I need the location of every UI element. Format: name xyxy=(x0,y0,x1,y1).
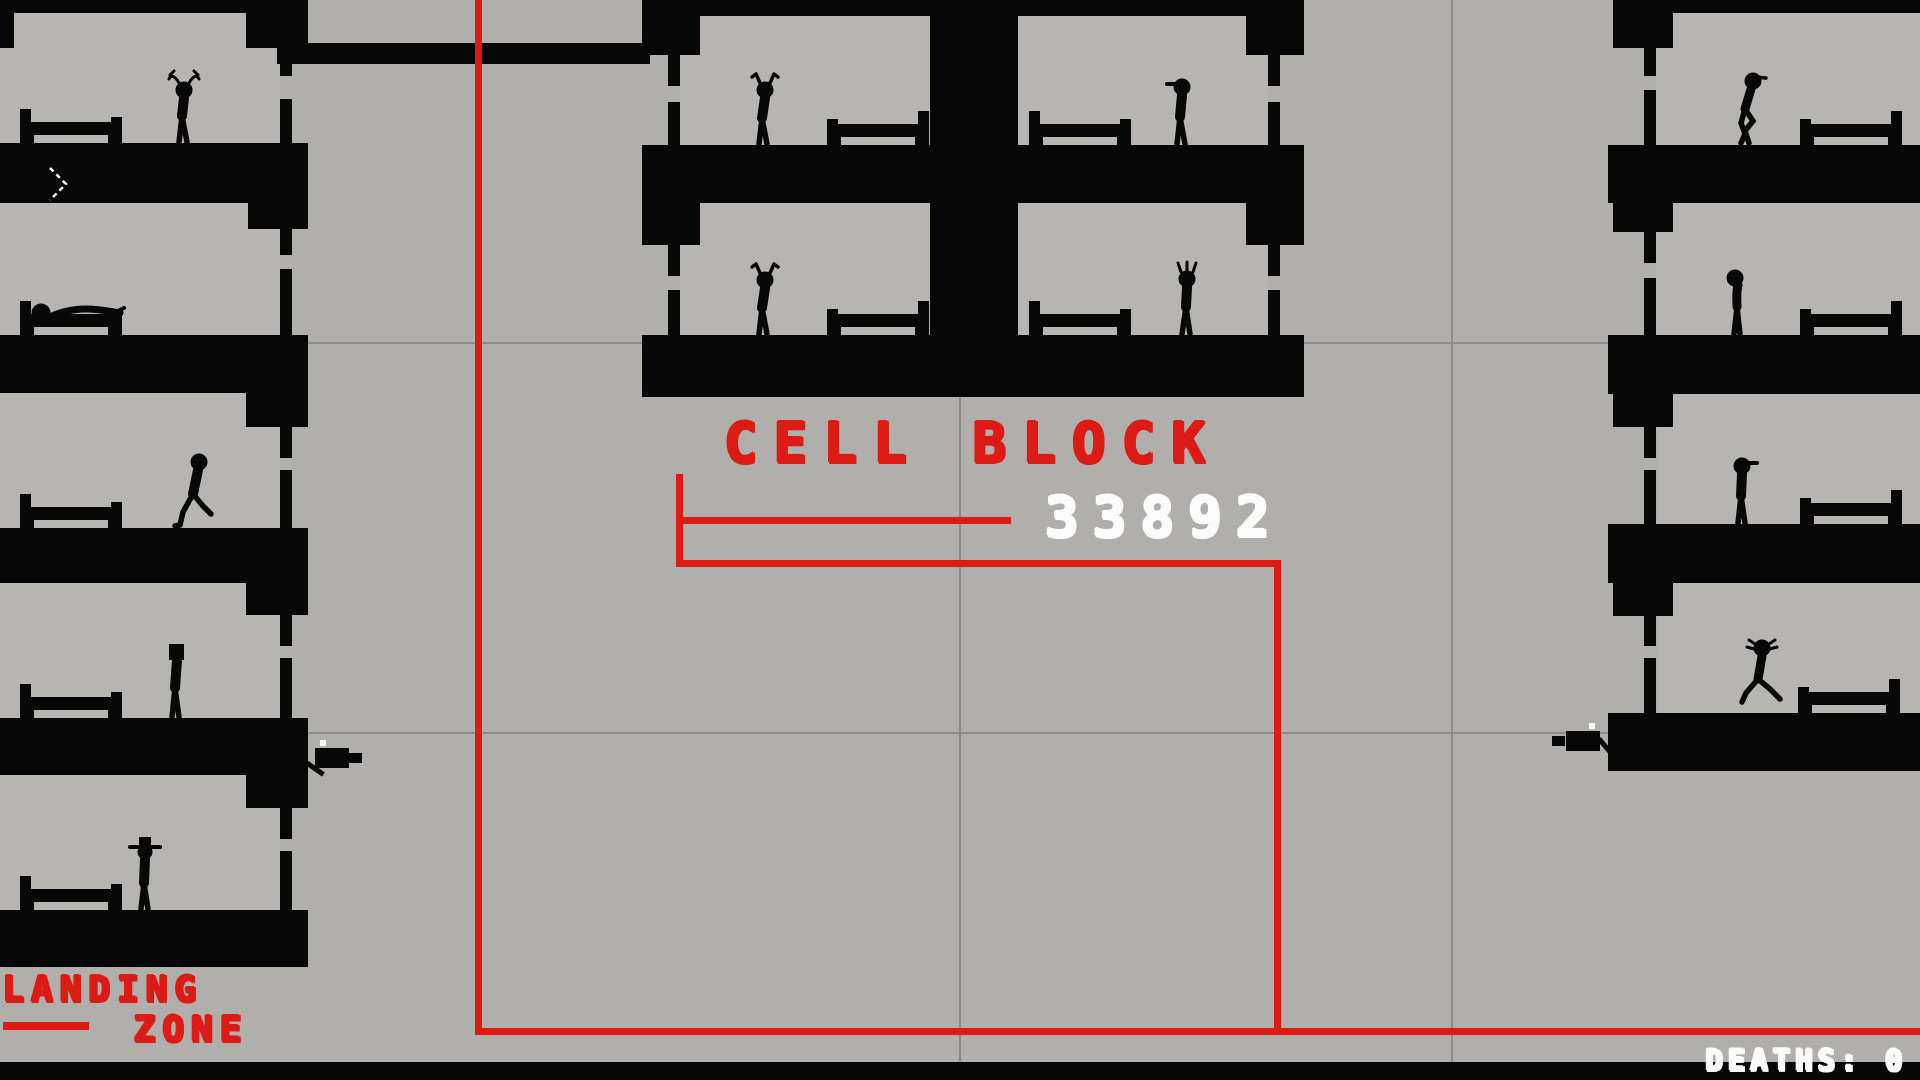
wall-gun-turret-right-barrel xyxy=(1552,736,1565,746)
right-corner-3 xyxy=(1613,394,1673,427)
bottom-letterbox-bar xyxy=(0,1062,1920,1080)
prisoner-ears-bottom-icon xyxy=(743,261,787,335)
right-corner-1 xyxy=(1613,13,1673,48)
landing-dash xyxy=(3,1022,89,1030)
prisoner-cowboy-icon xyxy=(123,836,167,910)
right-ceiling xyxy=(1613,0,1920,13)
landing-zone-line2: ZONE xyxy=(90,1012,248,1048)
right-doorwall-2a xyxy=(1644,232,1656,263)
bed-right-4-foot-post xyxy=(1798,687,1809,713)
bed-center-tl-foot-post xyxy=(827,119,838,145)
right-doorwall-2b xyxy=(1644,278,1656,335)
center-floor-2 xyxy=(642,335,1304,397)
bed-left-5-mattress xyxy=(20,889,122,902)
cell-block-title: CELL BLOCK xyxy=(640,416,1304,472)
center-floor-1 xyxy=(642,145,1304,203)
center-doorwall-l1b xyxy=(668,102,680,145)
game-viewport[interactable]: CELL BLOCK 33892 LANDING ZONE DEATHS: 0 xyxy=(0,0,1920,1080)
center-doorwall-r2a xyxy=(1268,245,1280,276)
right-doorwall-4b xyxy=(1644,658,1656,713)
left-corner-4 xyxy=(246,583,308,615)
bed-left-3-foot-post xyxy=(111,502,122,528)
left-top-stub xyxy=(0,13,14,48)
left-doorwall-2a xyxy=(280,229,292,255)
center-doorwall-l1a xyxy=(668,55,680,86)
right-floor-4 xyxy=(1608,713,1920,771)
bed-center-tr-headboard-post xyxy=(1029,111,1040,145)
bed-right-1-foot-post xyxy=(1800,119,1811,145)
bed-right-2-foot-post xyxy=(1800,309,1811,335)
left-floor-5 xyxy=(0,910,308,967)
prisoner-cap-facing-left-icon xyxy=(1160,71,1204,145)
bed-right-3-mattress xyxy=(1800,503,1902,516)
bed-center-br-mattress xyxy=(1029,314,1131,327)
left-corner-5 xyxy=(246,775,308,808)
bed-center-tl-mattress xyxy=(827,124,929,137)
background-gridline-v1 xyxy=(1451,0,1453,1080)
center-corner-mr xyxy=(1246,203,1304,245)
right-doorwall-1b xyxy=(1644,90,1656,145)
right-floor-3 xyxy=(1608,524,1920,583)
prisoner-drooping-icon xyxy=(1717,261,1761,335)
center-corner-tl xyxy=(642,0,700,55)
prisoner-crown-icon xyxy=(1165,261,1209,335)
center-doorwall-r1a xyxy=(1268,55,1280,86)
left-doorwall-5a xyxy=(280,808,292,839)
right-doorwall-3b xyxy=(1644,470,1656,524)
right-floor-2 xyxy=(1608,335,1920,394)
left-doorwall-4a xyxy=(280,615,292,646)
bed-left-4-mattress xyxy=(20,697,122,710)
center-doorwall-r2b xyxy=(1268,290,1280,335)
left-doorwall-3b xyxy=(280,470,292,528)
right-corner-4 xyxy=(1613,583,1673,616)
left-doorwall-5b xyxy=(280,851,292,910)
center-doorwall-r1b xyxy=(1268,102,1280,145)
center-doorwall-l2b xyxy=(668,290,680,335)
right-doorwall-3a xyxy=(1644,427,1656,458)
bed-right-2-mattress xyxy=(1800,314,1902,327)
spawn-arrow-marker xyxy=(0,120,80,340)
bed-right-3-foot-post xyxy=(1800,498,1811,524)
center-doorwall-l2a xyxy=(668,245,680,276)
bed-center-br-foot-post xyxy=(1120,309,1131,335)
callout-vertical-right xyxy=(1274,560,1281,1035)
right-doorwall-4a xyxy=(1644,616,1656,646)
left-doorwall-4b xyxy=(280,658,292,718)
wall-gun-turret-right-body xyxy=(1566,731,1600,751)
bed-right-2-headboard-post xyxy=(1891,301,1902,335)
prisoner-walking-icon xyxy=(174,454,218,528)
left-floor-4 xyxy=(0,718,308,775)
prisoner-running-icon xyxy=(1740,639,1784,713)
bed-center-bl-headboard-post xyxy=(918,301,929,335)
left-doorwall-3a xyxy=(280,427,292,458)
bed-right-1-headboard-post xyxy=(1891,111,1902,145)
deaths-counter: DEATHS: 0 xyxy=(1705,1046,1907,1075)
route-vertical-main xyxy=(475,0,482,1035)
bed-left-5-headboard-post xyxy=(20,876,31,910)
wall-gun-turret-right-muzzle-flash xyxy=(1589,723,1595,729)
bed-center-bl-foot-post xyxy=(827,309,838,335)
callout-horizontal-long xyxy=(676,560,1281,567)
bed-right-4-mattress xyxy=(1798,692,1900,705)
left-corner-3 xyxy=(246,393,308,427)
bed-center-br-headboard-post xyxy=(1029,301,1040,335)
corridor-bridge-bar xyxy=(277,43,650,64)
prisoner-ears-top-icon xyxy=(743,71,787,145)
cell-number: 33892 xyxy=(953,490,1283,546)
center-corner-ml xyxy=(642,203,700,245)
bed-left-3-headboard-post xyxy=(20,494,31,528)
wall-gun-turret-left-muzzle-flash xyxy=(320,740,326,746)
landing-zone-line1: LANDING xyxy=(2,972,203,1008)
bed-center-tl-headboard-post xyxy=(918,111,929,145)
bed-center-tr-foot-post xyxy=(1120,119,1131,145)
left-floor-2 xyxy=(0,335,308,393)
left-doorwall-1b xyxy=(280,99,292,143)
bed-right-4-headboard-post xyxy=(1889,679,1900,713)
center-corner-tr xyxy=(1246,0,1304,55)
route-horizontal-bottom xyxy=(475,1028,1920,1035)
bed-left-4-foot-post xyxy=(111,692,122,718)
center-ceiling xyxy=(642,0,1304,16)
left-floor-3 xyxy=(0,528,308,583)
wall-gun-turret-left-body xyxy=(315,748,349,768)
bed-center-bl-mattress xyxy=(827,314,929,327)
left-corner-2 xyxy=(248,203,308,229)
left-ceiling xyxy=(0,0,250,13)
prisoner-crouching-icon xyxy=(1728,71,1772,145)
right-floor-1 xyxy=(1608,145,1920,203)
right-doorwall-1a xyxy=(1644,48,1656,76)
left-corner-1 xyxy=(246,0,308,48)
bed-left-3-mattress xyxy=(20,507,122,520)
left-doorwall-2b xyxy=(280,269,292,335)
bed-left-5-foot-post xyxy=(111,884,122,910)
bed-right-3-headboard-post xyxy=(1891,490,1902,524)
prisoner-antlers-icon xyxy=(162,69,206,143)
right-corner-2 xyxy=(1613,203,1673,232)
bed-left-1-foot-post xyxy=(111,117,122,143)
bed-center-tr-mattress xyxy=(1029,124,1131,137)
bed-left-4-headboard-post xyxy=(20,684,31,718)
bed-right-1-mattress xyxy=(1800,124,1902,137)
prisoner-flatcap-icon xyxy=(155,644,199,718)
prisoner-cap-facing-right-icon xyxy=(1720,450,1764,524)
wall-gun-turret-left-barrel xyxy=(349,753,362,763)
